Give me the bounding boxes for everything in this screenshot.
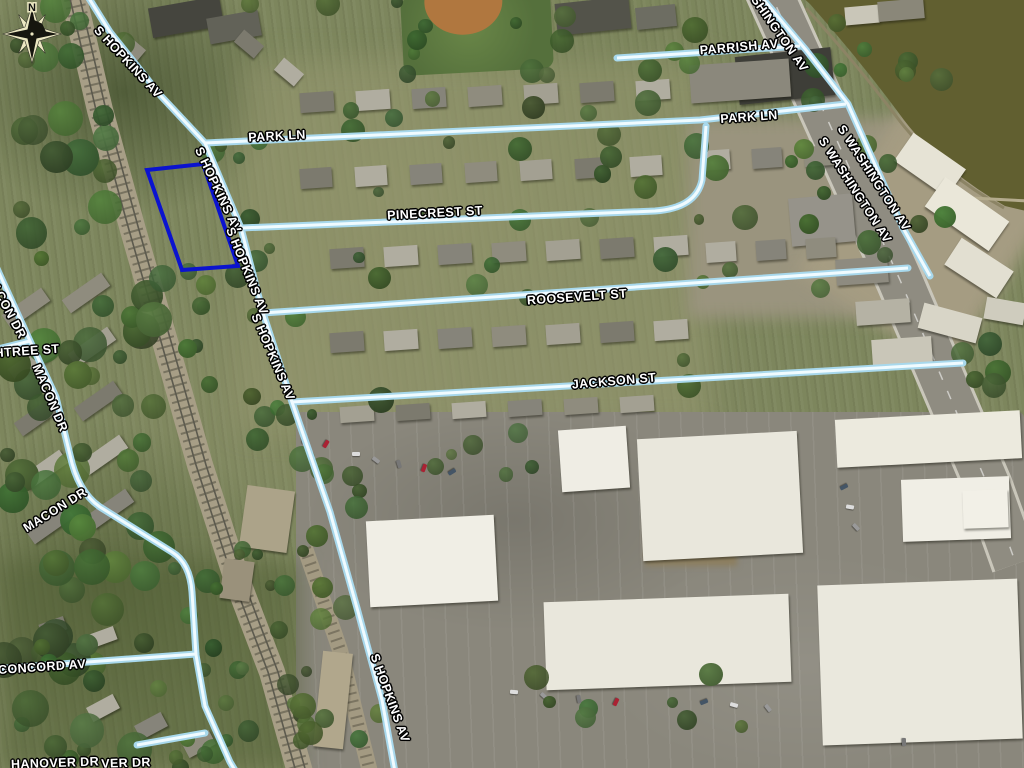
- tree-canopy: [5, 459, 38, 492]
- street-label: MACON DR: [29, 362, 70, 434]
- street-label: MACON DR: [21, 485, 89, 535]
- tree-canopy: [316, 0, 340, 16]
- house: [62, 273, 110, 314]
- tree-canopy: [682, 17, 707, 42]
- tree-canopy: [215, 140, 227, 152]
- tree-canopy: [966, 371, 983, 388]
- tree-canopy: [418, 19, 433, 34]
- tree-canopy: [550, 29, 575, 54]
- tree-canopy: [510, 17, 522, 29]
- tree-canopy: [31, 470, 61, 500]
- lower-left-woods: [0, 560, 300, 768]
- tree-canopy: [126, 512, 154, 540]
- house: [80, 435, 128, 476]
- house: [234, 30, 264, 59]
- compass-rose: N: [2, 0, 64, 70]
- dirt-lot: [645, 478, 737, 566]
- tree-canopy: [192, 297, 210, 315]
- neighborhood-ground: [240, 60, 710, 430]
- building: [116, 34, 146, 63]
- building: [877, 0, 925, 22]
- building: [148, 0, 224, 38]
- tree-canopy: [200, 139, 224, 163]
- tree-canopy: [92, 295, 114, 317]
- tree-canopy: [93, 159, 117, 183]
- house: [20, 450, 68, 491]
- tree-canopy: [112, 394, 135, 417]
- tree-canopy: [73, 327, 107, 361]
- tree-canopy: [117, 449, 139, 471]
- tree-canopy: [985, 360, 1011, 386]
- tree-canopy: [93, 125, 119, 151]
- tree-canopy: [978, 332, 1002, 356]
- street-label: S HOPKINS AV: [91, 23, 165, 101]
- tree-canopy: [40, 141, 73, 174]
- tree-canopy: [241, 0, 259, 13]
- tree-canopy: [27, 394, 54, 421]
- house: [26, 504, 74, 545]
- tree-canopy: [196, 275, 217, 296]
- tree-canopy: [0, 482, 29, 513]
- tree-canopy: [48, 101, 83, 136]
- tree-canopy: [828, 14, 846, 32]
- street-label: S HOPKINS AV: [192, 145, 244, 235]
- tree-canopy: [809, 96, 822, 109]
- house: [68, 327, 116, 368]
- house: [86, 489, 134, 530]
- tree-canopy: [112, 32, 135, 55]
- tree-canopy: [18, 115, 49, 146]
- tree-canopy: [143, 531, 175, 563]
- tree-canopy: [13, 201, 30, 218]
- house: [74, 381, 122, 422]
- tree-canopy: [804, 53, 829, 78]
- tree-canopy: [197, 301, 210, 314]
- tree-canopy: [408, 47, 421, 60]
- tree-canopy: [74, 219, 90, 235]
- house: [8, 342, 56, 383]
- tree-canopy: [11, 117, 38, 144]
- tree-canopy: [149, 265, 176, 292]
- aerial-map-canvas[interactable]: S HOPKINS AVPARK LNPARK LNPARRISH AVS WA…: [0, 0, 1024, 768]
- tree-canopy: [123, 319, 151, 347]
- tree-canopy: [895, 60, 916, 81]
- tree-canopy: [407, 30, 427, 50]
- tree-canopy: [180, 263, 197, 280]
- baseball-infield: [423, 0, 504, 37]
- tree-canopy: [60, 504, 92, 536]
- tree-canopy: [27, 328, 61, 362]
- tree-canopy: [391, 0, 403, 8]
- road-htree-st: [0, 341, 30, 350]
- building: [844, 5, 879, 26]
- building: [206, 10, 262, 45]
- subject-parcel-outline: [147, 164, 238, 270]
- tree-canopy: [665, 42, 685, 62]
- tree-canopy: [246, 428, 269, 451]
- building: [239, 485, 295, 553]
- tree-canopy: [130, 470, 152, 492]
- tree-canopy: [898, 52, 917, 71]
- tree-canopy: [190, 339, 203, 352]
- house: [2, 288, 50, 329]
- tree-canopy: [554, 6, 575, 27]
- tree-canopy: [982, 373, 1007, 398]
- tree-canopy: [0, 448, 15, 463]
- building: [635, 4, 677, 30]
- tree-canopy: [899, 67, 914, 82]
- tree-canopy: [72, 443, 92, 463]
- tree-canopy: [834, 63, 848, 77]
- tree-canopy: [0, 348, 31, 382]
- street-label: HTREE ST: [0, 342, 60, 361]
- tree-canopy: [201, 376, 218, 393]
- tree-canopy: [81, 367, 99, 385]
- tree-canopy: [69, 514, 96, 541]
- tree-canopy: [234, 549, 245, 560]
- tree-canopy: [5, 472, 25, 492]
- tree-canopy: [34, 251, 49, 266]
- tree-canopy: [131, 280, 163, 312]
- tree-canopy: [136, 302, 172, 338]
- tree-canopy: [113, 350, 127, 364]
- house: [14, 396, 62, 437]
- tree-canopy: [121, 306, 143, 328]
- street-label: MACON DR: [0, 271, 29, 341]
- building: [555, 0, 632, 36]
- tree-canopy: [252, 549, 263, 560]
- tree-canopy: [801, 88, 825, 112]
- tree-canopy: [133, 433, 151, 451]
- road-parrish-av: [617, 46, 800, 58]
- tree-canopy: [93, 105, 114, 126]
- tree-canopy: [141, 394, 166, 419]
- tree-canopy: [74, 147, 100, 173]
- tree-canopy: [123, 313, 160, 350]
- tree-canopy: [178, 339, 197, 358]
- tree-canopy: [54, 452, 90, 488]
- street-label: S WASHINGTON AV: [729, 0, 811, 74]
- tree-canopy: [70, 12, 88, 30]
- street-label: PARRISH AV: [699, 37, 779, 58]
- tree-canopy: [88, 190, 123, 225]
- tree-canopy: [58, 340, 82, 364]
- commercial-parking-ground: [296, 412, 1024, 768]
- tree-canopy: [62, 139, 99, 176]
- tree-canopy: [16, 217, 48, 249]
- tree-canopy: [234, 541, 251, 558]
- tree-canopy: [14, 369, 44, 399]
- compass-north-letter: N: [28, 2, 36, 14]
- building: [735, 47, 835, 105]
- tree-canopy: [64, 361, 92, 389]
- tree-canopy: [857, 42, 872, 57]
